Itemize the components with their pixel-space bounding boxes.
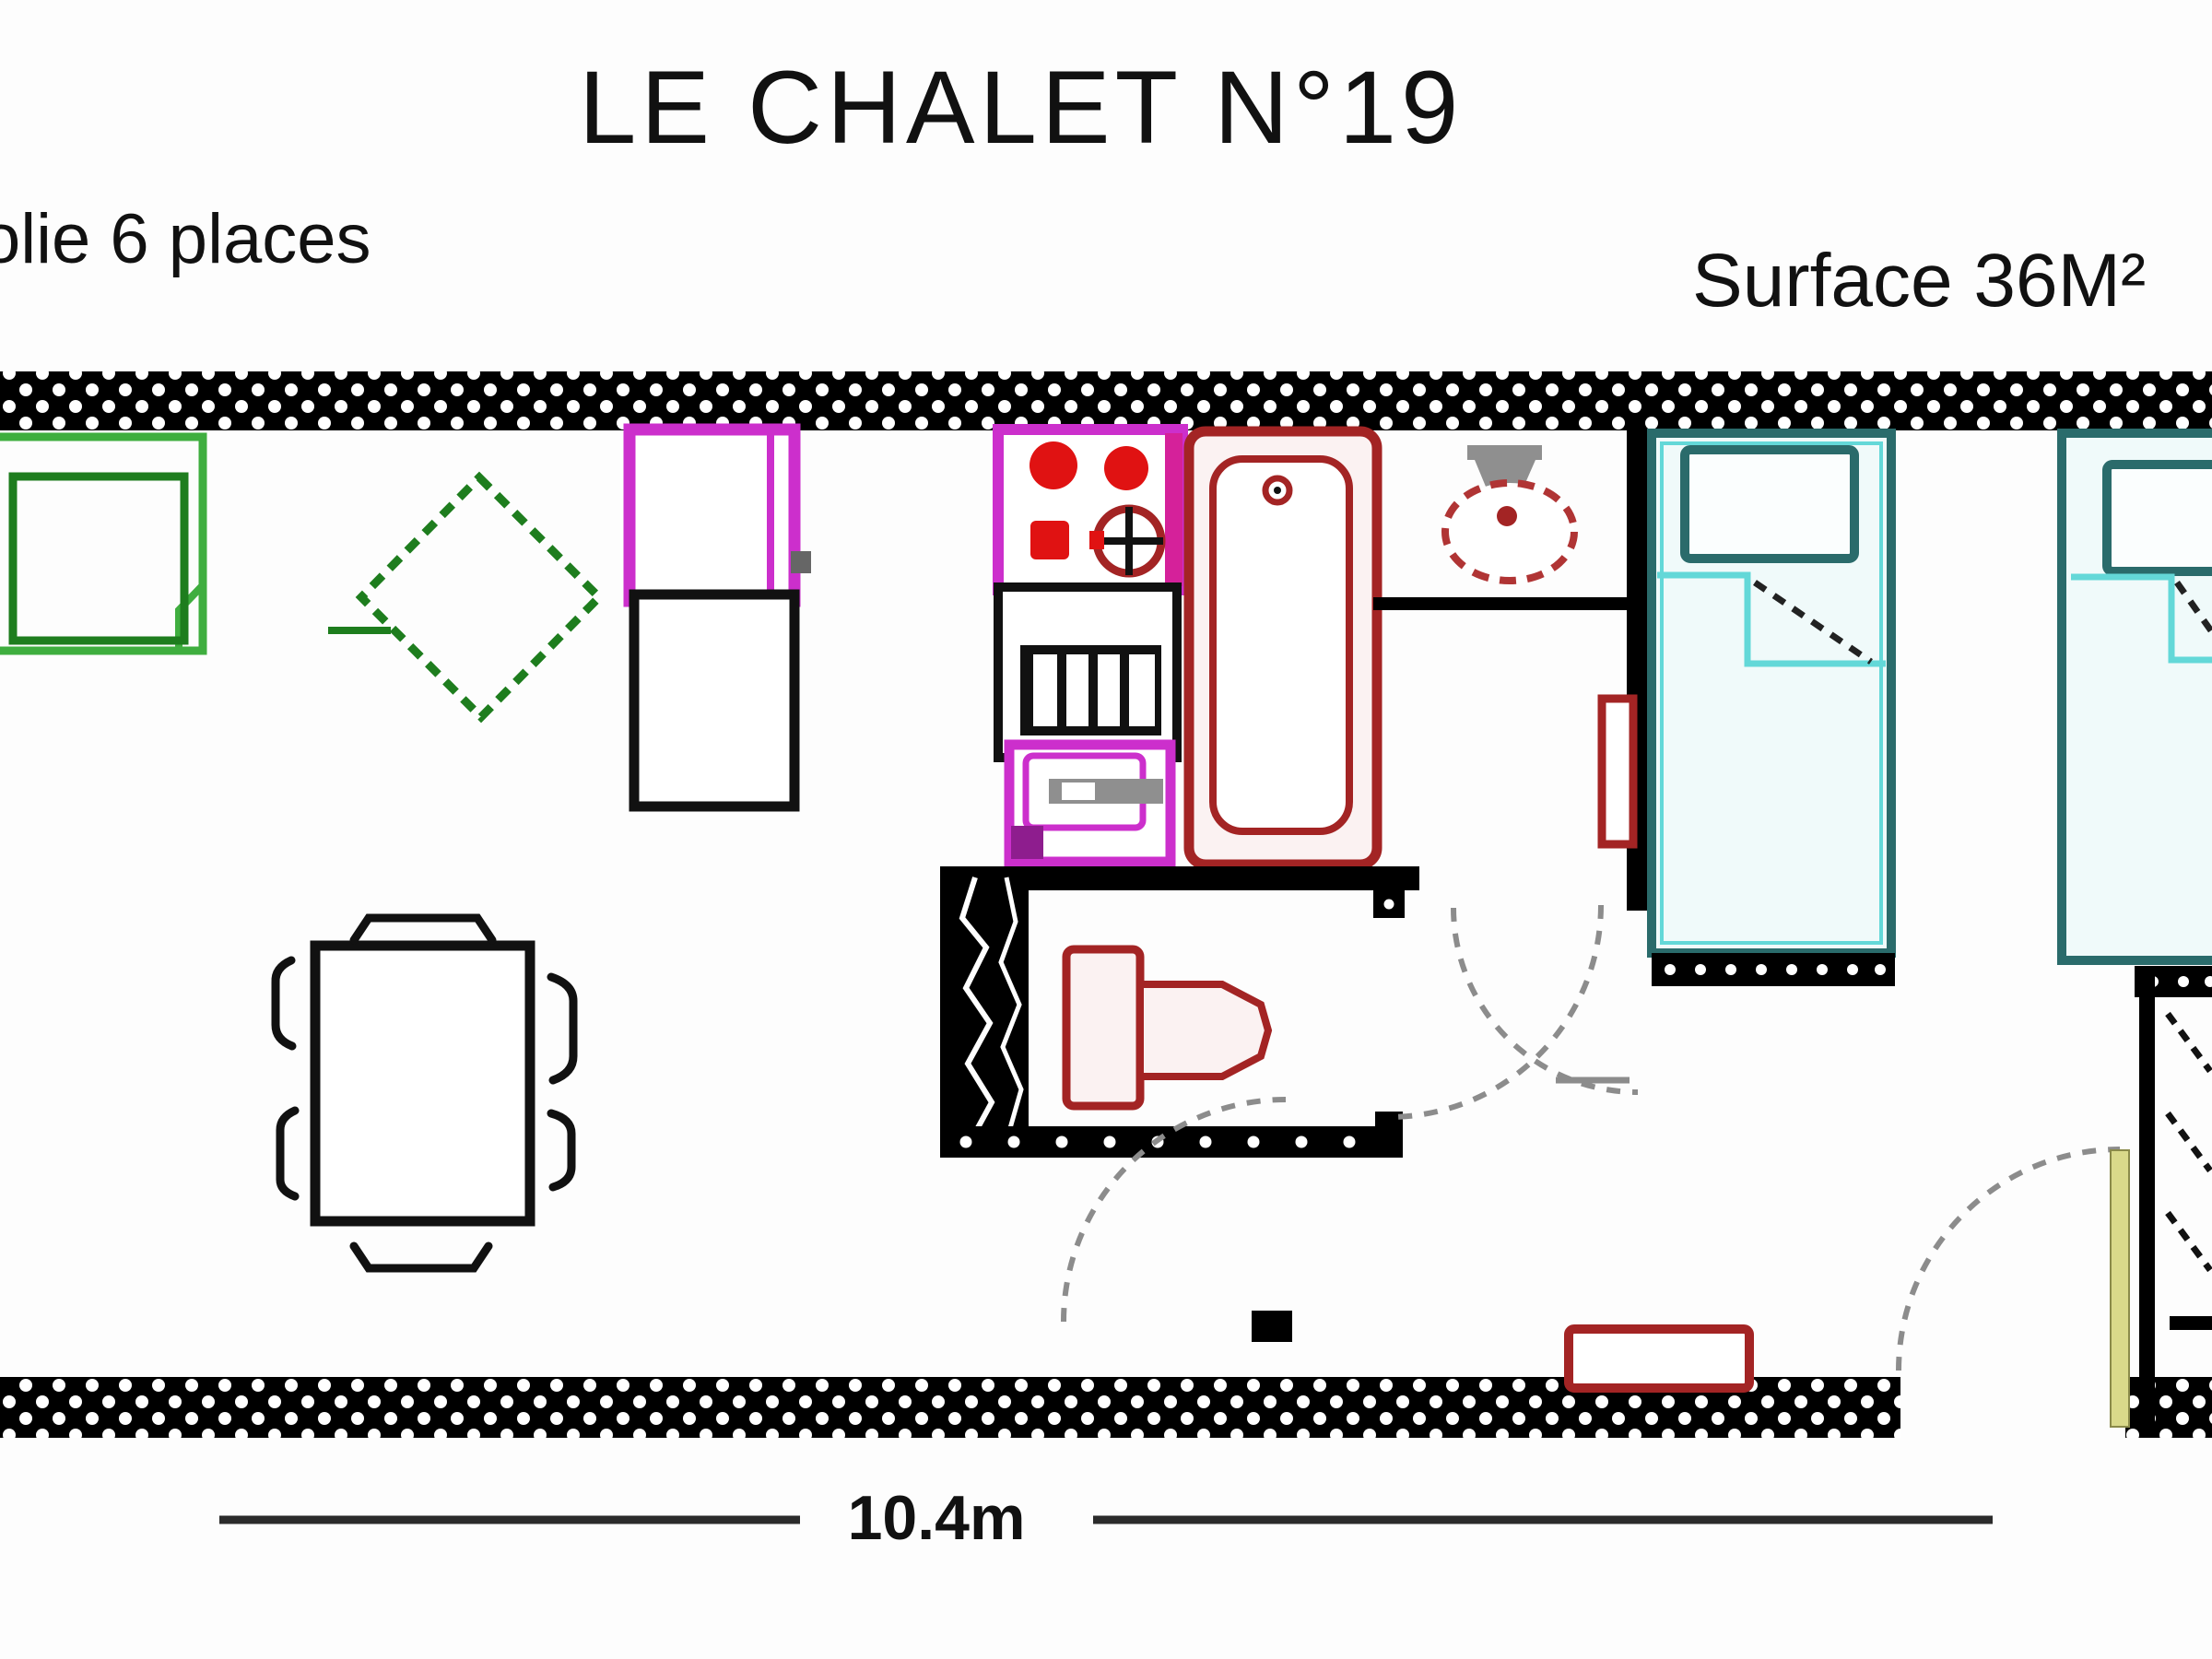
kitchen-sink bbox=[1009, 745, 1171, 862]
bed-2 bbox=[2062, 433, 2212, 997]
burner bbox=[1030, 441, 1077, 489]
bed-1 bbox=[1652, 433, 1895, 986]
burner bbox=[1030, 521, 1069, 559]
bathtub bbox=[1189, 431, 1377, 865]
pillow bbox=[1685, 450, 1854, 559]
wall-bottom-right bbox=[2125, 1377, 2212, 1438]
door-leaf bbox=[2111, 1150, 2129, 1427]
capacity-label: olie 6 places bbox=[0, 199, 371, 279]
floorplan-page: LE CHALET N°19 olie 6 places Surface 36M… bbox=[0, 0, 2212, 1659]
washbasin bbox=[1445, 445, 1574, 581]
kitchen-counter bbox=[634, 594, 794, 806]
wall-bathroom-south bbox=[1373, 597, 1627, 610]
page-title: LE CHALET N°19 bbox=[579, 48, 1463, 167]
toilet bbox=[1066, 949, 1268, 1106]
kitchen-cabinet bbox=[998, 587, 1177, 758]
wardrobe-wall bbox=[2139, 973, 2155, 1434]
sofa bbox=[0, 437, 203, 651]
basin-tap bbox=[1467, 445, 1542, 460]
radiator-wall bbox=[1602, 699, 1633, 844]
fridge bbox=[629, 429, 811, 601]
radiator-bottom bbox=[1569, 1329, 1749, 1388]
bed-foot-board bbox=[1652, 953, 1895, 986]
wall-top bbox=[0, 371, 2212, 430]
stove bbox=[998, 429, 1182, 590]
wardrobe bbox=[2139, 973, 2212, 1434]
bedroom-door-arc bbox=[1453, 908, 1638, 1092]
door-hinge-block bbox=[1252, 1311, 1292, 1342]
burner bbox=[1104, 446, 1148, 490]
fridge-handle bbox=[791, 551, 811, 573]
length-dimension-label: 10.4m bbox=[848, 1482, 1026, 1554]
pillow bbox=[2107, 465, 2212, 571]
bedroom2-door-arc bbox=[1899, 1149, 2120, 1371]
dining-table bbox=[276, 918, 573, 1268]
surface-label: Surface 36M² bbox=[1692, 238, 2146, 324]
armchair bbox=[328, 477, 599, 717]
wc-door-arc bbox=[1389, 905, 1601, 1117]
